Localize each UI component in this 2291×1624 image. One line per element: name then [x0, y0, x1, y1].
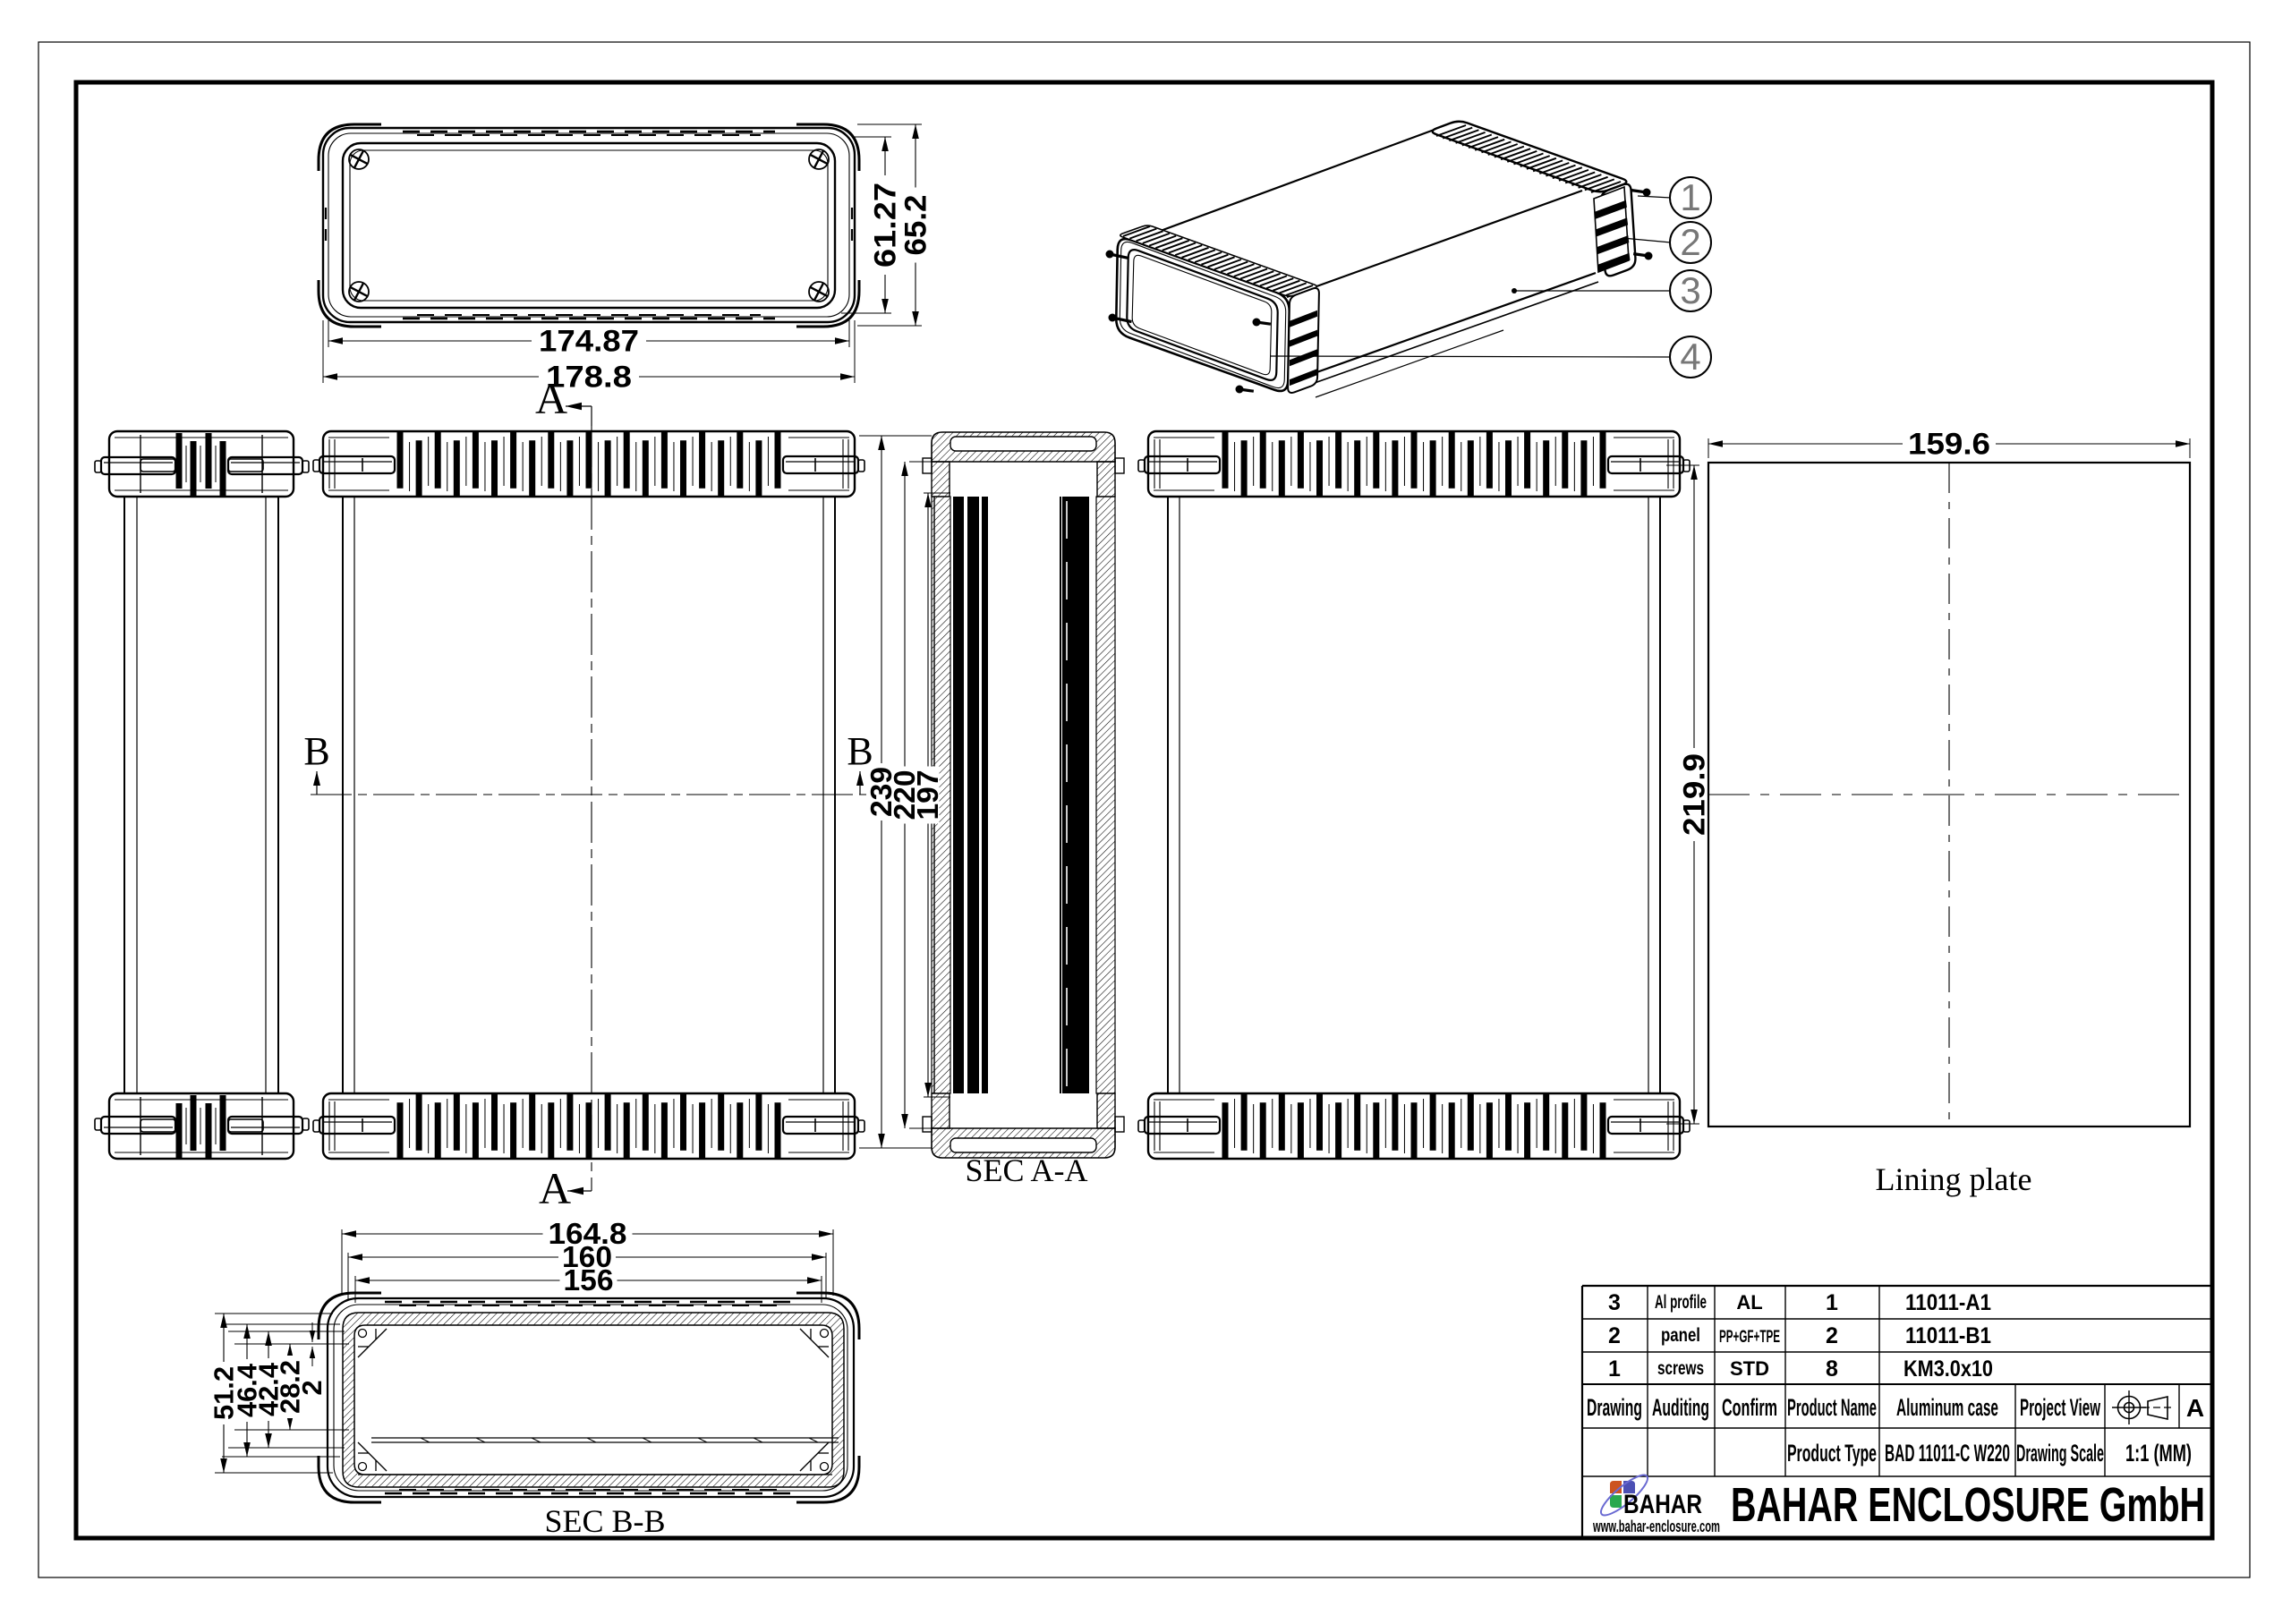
svg-text:A: A [535, 373, 567, 423]
svg-text:Lining plate: Lining plate [1876, 1161, 2032, 1197]
svg-text:219.9: 219.9 [1678, 753, 1712, 836]
svg-text:3: 3 [1680, 269, 1700, 311]
svg-text:Aluminum case: Aluminum case [1896, 1394, 1998, 1421]
svg-text:Confirm: Confirm [1722, 1394, 1777, 1421]
svg-text:197: 197 [911, 770, 944, 821]
svg-text:2: 2 [1608, 1323, 1621, 1348]
svg-text:Product Type: Product Type [1787, 1440, 1877, 1467]
svg-text:www.bahar-enclosure.com: www.bahar-enclosure.com [1592, 1518, 1720, 1535]
svg-text:2: 2 [1680, 221, 1700, 263]
svg-text:1:1 (MM): 1:1 (MM) [2125, 1440, 2192, 1467]
svg-text:11011-A1: 11011-A1 [1905, 1290, 1991, 1315]
svg-text:156: 156 [564, 1263, 614, 1297]
svg-text:Al profile: Al profile [1655, 1292, 1707, 1313]
svg-text:BAHAR ENCLOSURE GmbH: BAHAR ENCLOSURE GmbH [1731, 1478, 2205, 1532]
svg-text:65.2: 65.2 [899, 195, 933, 256]
svg-text:A: A [2186, 1394, 2204, 1422]
svg-text:KM3.0x10: KM3.0x10 [1903, 1356, 1993, 1382]
svg-text:Auditing: Auditing [1652, 1394, 1709, 1421]
svg-text:Drawing: Drawing [1587, 1394, 1642, 1421]
svg-text:159.6: 159.6 [1908, 428, 1990, 462]
svg-text:screws: screws [1657, 1358, 1704, 1379]
svg-text:PP+GF+TPE: PP+GF+TPE [1719, 1328, 1780, 1347]
svg-text:11011-B1: 11011-B1 [1905, 1323, 1991, 1348]
svg-text:3: 3 [1608, 1290, 1621, 1315]
svg-text:1: 1 [1826, 1290, 1838, 1315]
svg-text:A: A [539, 1163, 571, 1213]
svg-text:BAD 11011-C W220: BAD 11011-C W220 [1885, 1440, 2010, 1467]
svg-text:STD: STD [1730, 1357, 1769, 1380]
svg-text:SEC B-B: SEC B-B [544, 1503, 665, 1539]
svg-text:Drawing Scale: Drawing Scale [2016, 1440, 2104, 1467]
svg-text:panel: panel [1661, 1325, 1700, 1346]
svg-text:1: 1 [1680, 176, 1700, 218]
svg-text:B: B [303, 729, 329, 773]
svg-text:SEC A-A: SEC A-A [965, 1152, 1087, 1188]
svg-text:Product Name: Product Name [1787, 1394, 1877, 1421]
svg-text:1: 1 [1608, 1356, 1621, 1382]
svg-text:2: 2 [1826, 1323, 1838, 1348]
svg-text:4: 4 [1680, 336, 1700, 378]
svg-text:Project View: Project View [2020, 1394, 2101, 1421]
svg-text:AL: AL [1736, 1291, 1762, 1314]
svg-text:BAHAR: BAHAR [1623, 1490, 1702, 1519]
svg-text:B: B [847, 729, 873, 773]
svg-text:8: 8 [1826, 1356, 1838, 1382]
svg-text:2: 2 [296, 1380, 328, 1395]
svg-text:174.87: 174.87 [539, 325, 639, 359]
svg-text:61.27: 61.27 [869, 183, 903, 268]
